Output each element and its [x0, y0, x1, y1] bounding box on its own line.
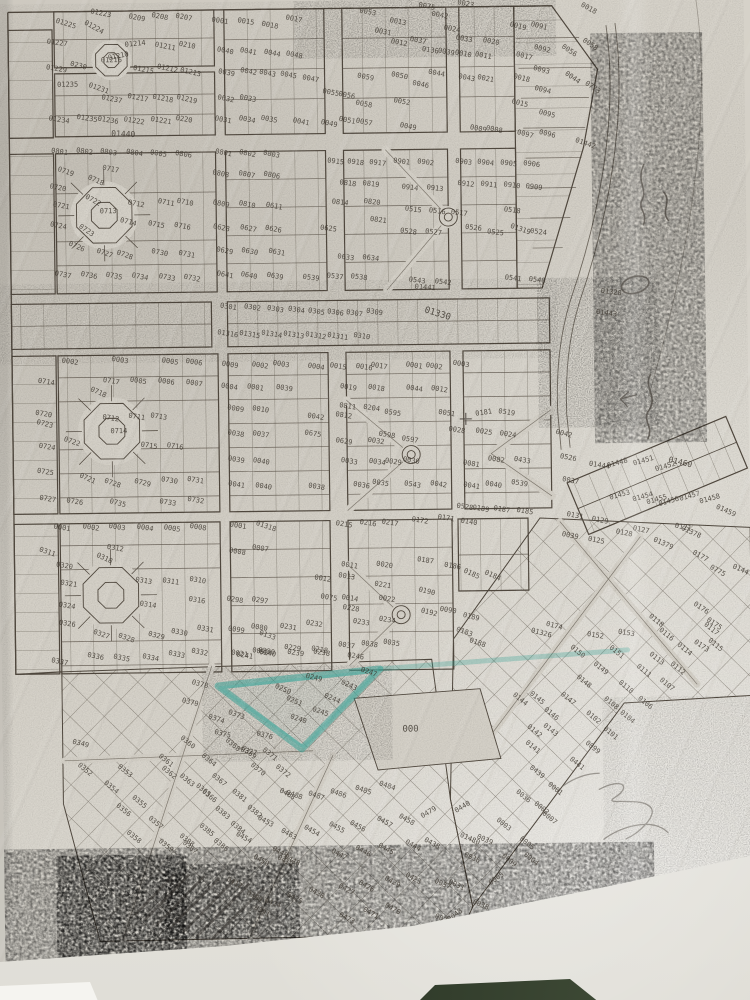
plot-label: 0015	[329, 361, 347, 372]
plot-label: 0597	[401, 434, 419, 445]
plot-label: 0390	[245, 889, 264, 904]
plot-label: 0453	[256, 814, 275, 829]
plot-label: 01221	[150, 115, 172, 126]
map-sheet: 0122302090208020701225012240122701214012…	[0, 0, 750, 1000]
plot-label: 0369	[240, 744, 258, 761]
plot-label: 0309	[365, 307, 383, 318]
plot-label: 0129	[591, 515, 609, 526]
plot-label: 0914	[401, 183, 419, 193]
plot-label: 0363	[178, 772, 196, 789]
plot-label: 0006	[157, 376, 175, 387]
plot-label: 0540	[528, 275, 546, 285]
plot-label: 0802	[76, 146, 94, 157]
plot-label: 0731	[178, 249, 196, 260]
plot-label: 0716	[173, 221, 191, 232]
plot-label: 0423	[404, 871, 423, 886]
plot-label: 0732	[187, 495, 205, 506]
plot-label: 0010	[252, 404, 270, 415]
plot-label: 0039	[227, 454, 245, 465]
plot-label: 0524	[530, 227, 548, 237]
plot-label: 0005	[487, 870, 505, 886]
plot-label: 000	[402, 724, 418, 734]
plot-label: 0633	[337, 252, 355, 262]
plot-label: 0360	[179, 734, 197, 751]
plot-label: 0059	[357, 72, 375, 83]
plot-label: 0484	[378, 779, 397, 792]
plot-label: 0428	[307, 885, 326, 900]
plot-label: 0773	[584, 79, 602, 95]
plot-label: 01229	[45, 63, 67, 74]
plot-label: 0440	[453, 799, 472, 814]
plot-label: 0381	[230, 787, 248, 804]
plot-label: 0094	[534, 84, 552, 96]
plot-label: 0058	[355, 99, 373, 110]
plot-label: 0711	[128, 412, 146, 423]
plot-label: 0040	[255, 481, 273, 492]
plot-label: 0307	[346, 308, 364, 319]
plot-label: 0470	[383, 901, 402, 916]
plot-label: 0114	[676, 641, 694, 658]
plot-label: 0004	[220, 381, 238, 392]
plot-label: 0728	[103, 477, 122, 490]
plot-label: 0318	[95, 551, 114, 565]
plot-label: 01457	[679, 489, 701, 502]
plot-label: 0735	[109, 497, 127, 509]
plot-label: 0185	[516, 506, 534, 517]
plot-label: 01379	[652, 535, 675, 551]
plot-label: 01442	[574, 136, 597, 151]
plot-label: 0025	[475, 426, 493, 437]
plot-label: 0526	[559, 452, 577, 463]
plot-label: 0215	[335, 519, 353, 530]
plot-label: 0038	[471, 898, 490, 912]
plot-label: 0712	[102, 413, 120, 424]
plot-label: 0305	[307, 306, 325, 317]
plot-label: 0542	[434, 277, 452, 287]
plot-label: 0353	[116, 763, 134, 780]
plot-label: 01448	[606, 456, 628, 469]
plot-label: 0189	[462, 611, 480, 623]
plot-label: 0240	[289, 712, 308, 725]
plot-label: 01235	[76, 113, 98, 124]
plot-label: 0048	[446, 907, 464, 923]
plot-label: 0915	[327, 156, 345, 166]
plot-label: 0528	[400, 227, 418, 237]
plot-label: 0007	[541, 809, 559, 826]
plot-label: 0035	[260, 114, 278, 125]
plot-label: 0002	[61, 356, 79, 367]
plot-label: 0715	[140, 440, 158, 451]
plot-label: 0438	[423, 836, 442, 851]
plot-label: 0148	[575, 673, 593, 690]
plot-label: 0002	[82, 522, 100, 533]
plot-label: 0241	[236, 650, 254, 661]
plot-label: 0039	[437, 47, 455, 58]
plot-label: 0424	[263, 897, 282, 910]
plot-label: 0911	[480, 180, 498, 190]
plot-label: 0007	[251, 543, 269, 554]
plot-label: 0543	[404, 479, 422, 490]
plot-label: 0639	[266, 271, 284, 282]
plot-label: 0091	[530, 20, 548, 32]
plot-label: 0810	[238, 199, 256, 210]
plot-label: 0364	[200, 752, 218, 769]
plot-label: 0488	[285, 788, 304, 801]
plot-label: 0446	[354, 844, 373, 859]
plot-label: 0097	[516, 128, 534, 140]
plot-label: 0009	[227, 403, 245, 414]
plot-label: 01227	[46, 38, 68, 49]
plot-label: 0053	[359, 6, 377, 17]
plot-label: 0809	[212, 198, 230, 209]
plot-label: 0802	[238, 148, 256, 159]
plot-label: 0334	[142, 652, 160, 663]
plot-label: 0727	[39, 494, 57, 505]
plot-label: 0177	[691, 548, 710, 563]
plot-label: 01313	[283, 329, 305, 340]
plot-label: 0008	[228, 546, 246, 557]
plot-label: 0445	[377, 841, 396, 856]
plot-label: 0133	[258, 629, 277, 642]
plot-label: 0018	[579, 1, 598, 16]
plot-label: 0444	[404, 838, 423, 853]
plot-label: 0304	[287, 305, 305, 316]
plot-label: 0049	[399, 121, 417, 132]
plot-label: 0727	[95, 247, 114, 260]
plot-label: 0310	[189, 575, 207, 586]
plot-label: 0006	[185, 357, 203, 368]
plot-label: 0042	[307, 411, 325, 422]
plot-label: 0486	[329, 787, 348, 800]
plot-label: 01312	[305, 330, 327, 341]
plot-label: 0913	[426, 183, 444, 193]
plot-label: 0359	[157, 837, 175, 854]
plot-label: 0722	[84, 193, 103, 208]
plot-label: 0734	[131, 271, 149, 282]
plot-label: 0012	[314, 573, 332, 584]
plot-label: 0115	[706, 636, 724, 653]
plot-label: 0316	[188, 595, 206, 606]
plot-label: 0221	[374, 580, 392, 591]
plot-label: 0043	[458, 72, 476, 83]
plot-label: 0539	[302, 273, 320, 283]
plot-label: 0058	[581, 36, 599, 52]
plot-label: 0044	[563, 69, 581, 85]
plot-label: 0038	[361, 639, 379, 650]
plot-label: 0172	[411, 515, 429, 526]
plot-label: 0232	[305, 618, 323, 629]
plot-label: 0001	[211, 16, 229, 27]
plot-label: 0034	[238, 114, 256, 125]
plot-label: 0113	[648, 650, 666, 667]
plot-label: 0298	[226, 594, 244, 605]
plot-label: 0306	[326, 307, 344, 318]
plot-label: 0176	[692, 600, 710, 616]
plot-label: 0724	[49, 220, 67, 231]
plot-label: 0310	[353, 331, 371, 342]
plot-label: 0037	[252, 429, 270, 440]
plot-label: 0301	[219, 301, 237, 312]
plot-label: 01315	[239, 329, 261, 340]
plot-label: 0814	[331, 197, 349, 207]
plot-label: 0454	[235, 830, 254, 845]
plot-label: 0153	[617, 628, 635, 639]
plot-label: 0821	[369, 215, 387, 225]
plot-label: 0017	[285, 13, 303, 24]
plot-label: 0335	[113, 653, 131, 664]
plot-label: 0041	[228, 479, 246, 490]
plot-label: 0245	[311, 705, 330, 718]
plot-label: 0324	[58, 600, 76, 611]
plot-label: 0357	[147, 814, 165, 831]
plot-label: 0001	[246, 382, 264, 393]
plot-label: 0737	[54, 269, 72, 280]
plot-label: 0002	[251, 360, 269, 371]
plot-label: 0641	[216, 269, 234, 280]
plot-label: 0231	[279, 622, 297, 633]
plot-label: 0379	[181, 696, 199, 708]
plot-label: 0733	[158, 272, 176, 283]
plot-label: 0326	[58, 618, 76, 629]
plot-label: 0230	[69, 60, 87, 72]
plot-label: 0044	[427, 68, 445, 79]
plot-label: 0011	[474, 50, 492, 61]
plot-label: 0541	[504, 273, 522, 283]
plot-label: 0005	[161, 356, 179, 367]
plot-label: 0041	[292, 116, 310, 127]
plot-label: 0331	[196, 624, 214, 635]
plot-label: 0111	[635, 662, 653, 679]
plot-label: 0368	[224, 736, 242, 753]
plot-label: 0314	[139, 599, 157, 610]
plot-label: 0152	[586, 630, 604, 641]
plot-label: 0901	[393, 157, 411, 167]
plot-label: 0052	[393, 96, 411, 107]
plot-label: 01234	[48, 114, 70, 125]
plot-label: 0013	[338, 571, 356, 582]
plot-label: 0009	[500, 852, 518, 869]
plot-label: 01235	[57, 81, 78, 89]
plot-label: 0081	[462, 459, 480, 470]
plot-label: 0611	[265, 201, 283, 212]
plot-label: 0142	[526, 723, 544, 740]
plot-label: 0723	[36, 418, 54, 430]
plot-label: 0717	[102, 376, 120, 387]
plot-label: 0328	[117, 631, 136, 644]
plot-label: 0022	[378, 594, 396, 605]
plot-label: 0011	[341, 560, 359, 571]
plot-label: 0039	[275, 383, 293, 394]
plot-label: 0125	[587, 535, 605, 546]
plot-label: 0917	[369, 158, 387, 168]
plot-label: 0145	[528, 690, 546, 707]
plot-label: 0912	[457, 179, 475, 189]
plot-label: 0905	[500, 158, 518, 168]
plot-label: 0005	[163, 523, 181, 534]
plot-label: 0041	[463, 481, 481, 492]
plot-label: 0320	[56, 560, 74, 571]
plot-label: 0629	[335, 436, 353, 447]
plot-label: 0192	[420, 606, 438, 618]
plot-label: 0715	[147, 219, 165, 230]
plot-label: 0008	[485, 124, 503, 135]
plot-label: 0626	[264, 224, 282, 235]
plot-label: 0009	[221, 359, 239, 370]
plot-label: 0012	[430, 384, 448, 395]
plot-label: 0243	[340, 678, 359, 692]
plot-label: 0019	[509, 20, 527, 32]
plot-label: 01314	[261, 329, 283, 340]
plot-label: 0029	[384, 456, 402, 467]
plot-label: 0903	[455, 157, 473, 167]
plot-label: 0106	[636, 694, 654, 711]
plot-label: 0127	[632, 524, 650, 535]
plot-label: 0099	[227, 624, 245, 635]
plot-label: 0141	[524, 739, 542, 756]
plot-label: 0625	[320, 224, 338, 234]
plot-label: 0044	[263, 48, 281, 59]
plot-label: 0726	[66, 496, 84, 507]
plot-label: 0131	[566, 510, 584, 521]
plot-label: 0456	[348, 819, 367, 834]
plot-label: 0721	[78, 471, 97, 485]
plot-label: 0801	[214, 147, 232, 158]
plot-label: 0057	[355, 117, 373, 128]
plot-label: 0001	[546, 780, 564, 797]
plot-label: 0047	[302, 73, 320, 84]
plot-label: 0228	[342, 603, 360, 614]
plot-label: 0487	[307, 789, 326, 802]
plot-label: 0038	[308, 481, 326, 492]
plot-label: 0003	[452, 359, 470, 370]
plot-label: 0051	[438, 408, 456, 419]
plot-label: 0001	[53, 523, 71, 534]
plot-label: 0143	[542, 721, 560, 738]
plot-label: 0362	[160, 764, 178, 781]
plot-label: 0187	[493, 504, 511, 515]
plot-label: 0019	[339, 382, 357, 393]
plot-label: 0439	[528, 764, 546, 781]
plot-label: 0032	[367, 436, 385, 447]
plot-labels-layer: 0122302090208020701225012240122701214012…	[0, 0, 750, 1000]
plot-label: 0023	[457, 0, 475, 9]
plot-label: 0042	[430, 479, 448, 490]
plot-label: 01218	[152, 93, 174, 105]
plot-label: 0110	[617, 679, 635, 696]
plot-label: 01222	[123, 115, 145, 126]
plot-label: 0031	[374, 26, 392, 37]
plot-label: 0216	[359, 518, 377, 529]
plot-label: 0321	[60, 578, 78, 589]
plot-label: 0356	[114, 802, 132, 819]
plot-label: 01212	[156, 63, 178, 75]
plot-label: 0713	[100, 207, 117, 215]
plot-label: 01216	[101, 56, 122, 64]
plot-label: 0189	[472, 503, 490, 514]
plot-label: 0311	[38, 545, 57, 558]
plot-label: 0711	[157, 197, 175, 208]
plot-label: 0033	[239, 93, 257, 104]
plot-label: 0723	[77, 222, 95, 238]
plot-label: 0039	[217, 67, 235, 78]
plot-label: 0720	[49, 182, 67, 193]
plot-label: 0713	[150, 411, 168, 422]
plot-label: 0056	[338, 90, 356, 101]
plot-label: 01237	[101, 93, 123, 105]
plot-label: 01320	[600, 287, 622, 298]
plot-label: 0454	[302, 823, 321, 838]
plot-label: 0041	[239, 46, 257, 57]
plot-label: 0812	[335, 410, 353, 421]
plot-label: 0056	[560, 43, 578, 59]
plot-label: 0146	[542, 705, 560, 722]
plot-label: 0385	[198, 822, 216, 839]
plot-label: 0630	[241, 246, 259, 257]
plot-label: 0020	[376, 560, 394, 571]
plot-label: 0190	[418, 585, 436, 597]
plot-label: 0712	[127, 198, 145, 209]
plot-label: 0184	[483, 568, 502, 582]
plot-label: 0149	[592, 660, 610, 677]
plot-label: 0515	[404, 204, 422, 214]
plot-label: 0028	[448, 425, 466, 436]
plot-label: 0001	[405, 360, 423, 371]
plot-label: 0537	[326, 271, 344, 281]
plot-label: 0714	[119, 216, 137, 228]
plot-label: 0429	[383, 874, 402, 889]
plot-label: 0352	[76, 761, 94, 778]
plot-label: 0383	[214, 804, 232, 821]
plot-label: 0037	[338, 640, 356, 651]
plot-label: 0095	[538, 108, 556, 120]
plot-label: 0373	[227, 708, 246, 721]
plot-label: 01451	[632, 454, 654, 467]
plot-label: 0033	[340, 456, 358, 467]
plot-label: 0181	[475, 407, 493, 417]
plot-label: 0035	[383, 637, 401, 648]
plot-label: 0031	[214, 114, 232, 125]
plot-label: 0731	[187, 475, 205, 486]
plot-label: 0240	[259, 648, 277, 659]
plot-label: 01318	[255, 519, 278, 534]
plot-label: 0412	[225, 875, 244, 890]
plot-label: 0005	[518, 835, 536, 852]
plot-label: 01316	[217, 328, 239, 339]
plot-label: 0725	[36, 467, 54, 478]
plot-label: 0018	[261, 20, 279, 31]
plot-label: 0038	[227, 428, 245, 439]
plot-label: 0042	[239, 66, 257, 77]
plot-label: 0803	[262, 149, 280, 160]
plot-label: 0332	[191, 647, 209, 658]
plot-label: 0015	[511, 97, 529, 109]
plot-label: 0040	[252, 456, 270, 467]
plot-label: 0207	[175, 12, 193, 23]
plot-label: 0045	[280, 69, 298, 80]
plot-label: 0020	[482, 36, 500, 47]
plot-label: 0183	[455, 625, 474, 638]
plot-label: 0714	[110, 427, 127, 435]
plot-label: 0458	[397, 812, 416, 827]
plot-label: 0107	[658, 676, 676, 693]
plot-label: 0372	[274, 763, 292, 780]
plot-label: 0033	[455, 33, 473, 44]
plot-label: 0297	[251, 595, 269, 606]
plot-label: 0906	[523, 159, 541, 169]
plot-label: 0208	[151, 11, 169, 22]
plot-label: 0042	[431, 10, 449, 21]
plot-label: 0918	[347, 157, 365, 167]
